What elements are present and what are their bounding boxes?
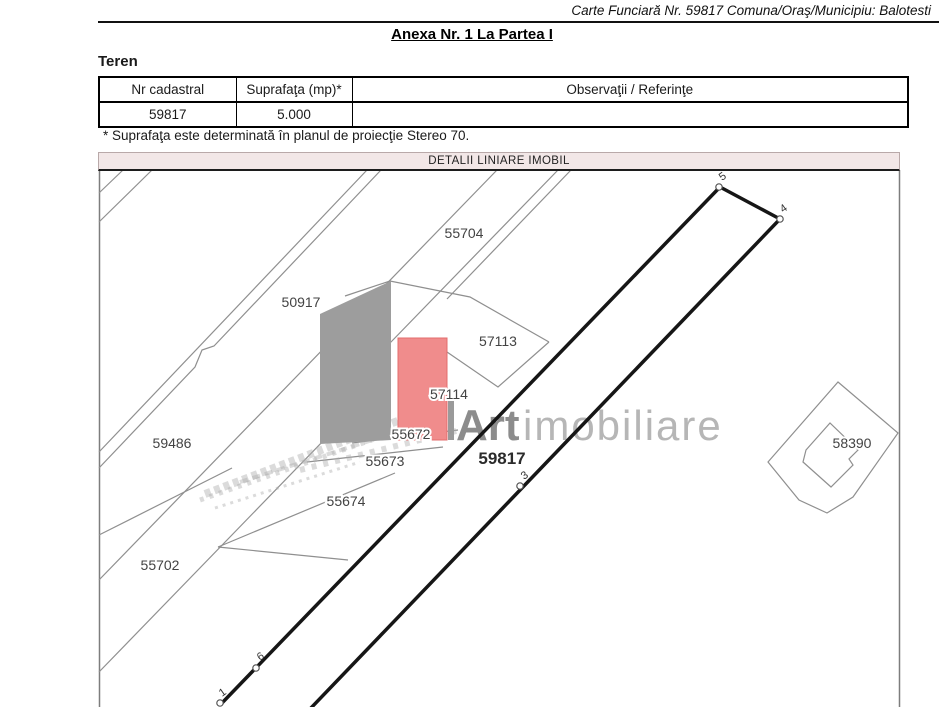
parcel-label-55702: 55702 (141, 557, 180, 573)
parcel-label-55673: 55673 (366, 453, 405, 469)
vertex-label-4: 4 (778, 202, 790, 215)
watermark-text-light: imobiliare (523, 402, 723, 449)
vertex-label-5: 5 (717, 170, 729, 183)
parcel-label-55672: 55672 (392, 426, 431, 442)
parcel-label-55704: 55704 (445, 225, 484, 241)
building-footprint-gray (320, 281, 391, 444)
vertex-point-5 (716, 184, 722, 190)
vertex-point-1 (217, 700, 223, 706)
parcel-label-58390: 58390 (833, 435, 872, 451)
vertex-point-3 (517, 483, 523, 489)
vertex-point-4 (777, 216, 783, 222)
map-section-header: DETALII LINIARE IMOBIL (98, 152, 900, 171)
parcel-label-59817: 59817 (478, 449, 525, 468)
cadastral-document-page: Carte Funciară Nr. 59817 Comuna/Oraş/Mun… (0, 0, 939, 707)
parcel-label-59486: 59486 (153, 435, 192, 451)
parcel-label-57114: 57114 (430, 386, 468, 402)
parcel-label-57113: 57113 (479, 333, 517, 349)
watermark-logo-bar (448, 399, 454, 440)
cadastral-map: Art imobiliare 5570450917571135711455672… (0, 0, 939, 707)
vertex-point-6 (253, 665, 259, 671)
parcel-label-55674: 55674 (327, 493, 366, 509)
parcel-label-50917: 50917 (282, 294, 321, 310)
